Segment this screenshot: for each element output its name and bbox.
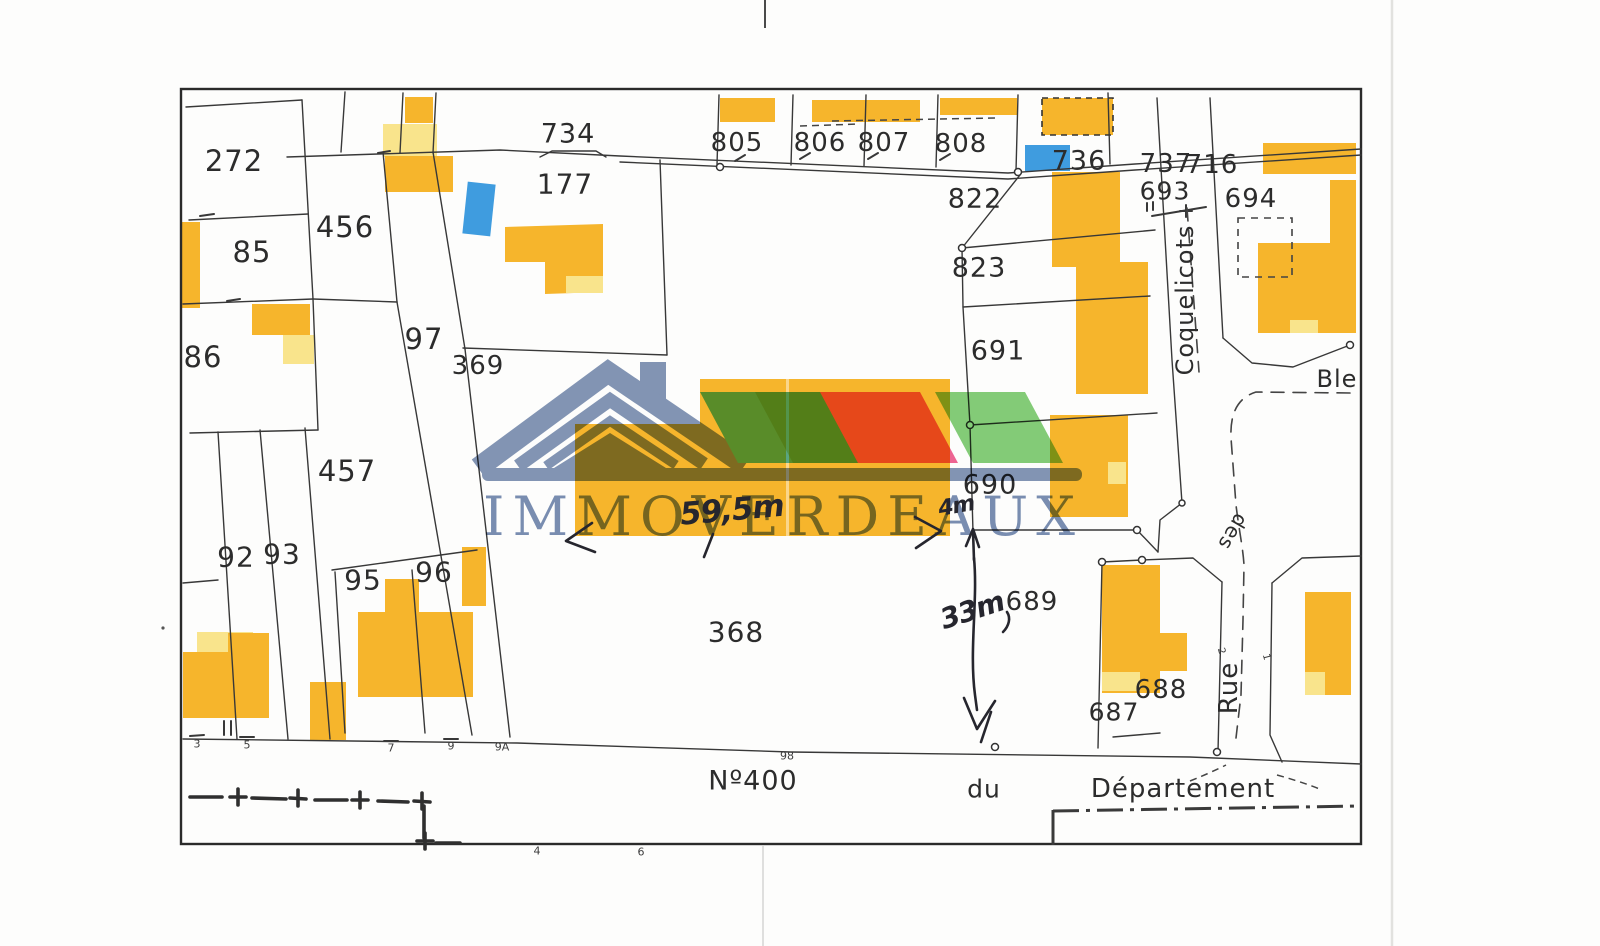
measure-arrows bbox=[566, 517, 1009, 742]
handwritten-depth-measure: 33m bbox=[936, 584, 1008, 636]
handwritten-annotations: 59,5m 4m 33m bbox=[0, 0, 1600, 946]
scanned-cadastral-plan: 272 85 86 456 97 369 457 92 93 95 96 177… bbox=[0, 0, 1600, 946]
handwritten-frontage-measure: 59,5m bbox=[679, 488, 786, 533]
handwritten-gap-measure: 4m bbox=[935, 491, 976, 522]
